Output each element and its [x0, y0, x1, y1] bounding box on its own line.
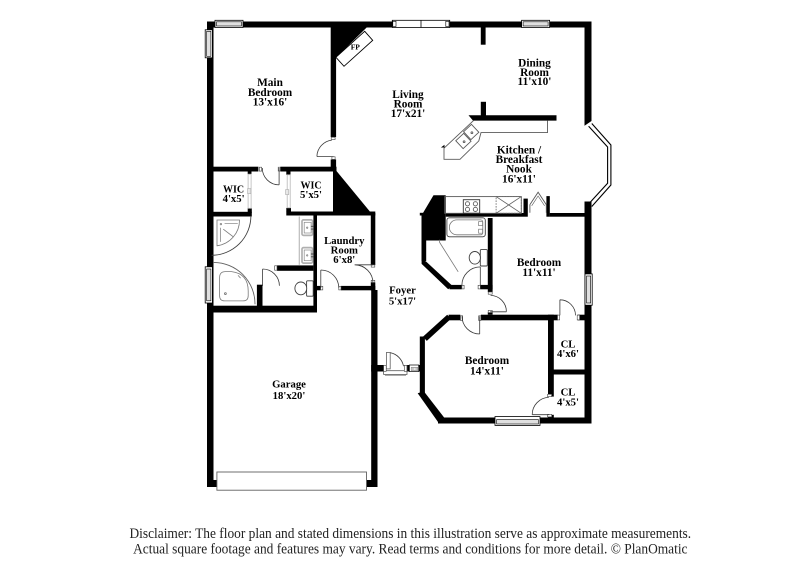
svg-text:4'x5': 4'x5'	[223, 193, 245, 205]
svg-text:18'x20': 18'x20'	[273, 390, 306, 402]
svg-text:14'x11': 14'x11'	[470, 365, 504, 377]
svg-text:FP: FP	[351, 43, 361, 52]
svg-text:13'x16': 13'x16'	[253, 96, 288, 108]
svg-text:17'x21': 17'x21'	[391, 108, 426, 120]
svg-text:11'x11': 11'x11'	[522, 267, 555, 279]
svg-text:Garage: Garage	[272, 379, 306, 391]
svg-text:5'x5': 5'x5'	[300, 189, 322, 201]
svg-text:4'x5': 4'x5'	[557, 396, 579, 408]
svg-text:Actual square footage and feat: Actual square footage and features may v…	[133, 542, 687, 558]
svg-text:Disclaimer: The floor plan and: Disclaimer: The floor plan and stated di…	[129, 527, 691, 543]
svg-text:11'x10': 11'x10'	[518, 76, 552, 88]
svg-text:16'x11': 16'x11'	[502, 173, 536, 185]
svg-text:4'x6': 4'x6'	[557, 348, 579, 360]
svg-text:5'x17': 5'x17'	[389, 296, 416, 308]
svg-text:6'x8': 6'x8'	[333, 254, 355, 266]
